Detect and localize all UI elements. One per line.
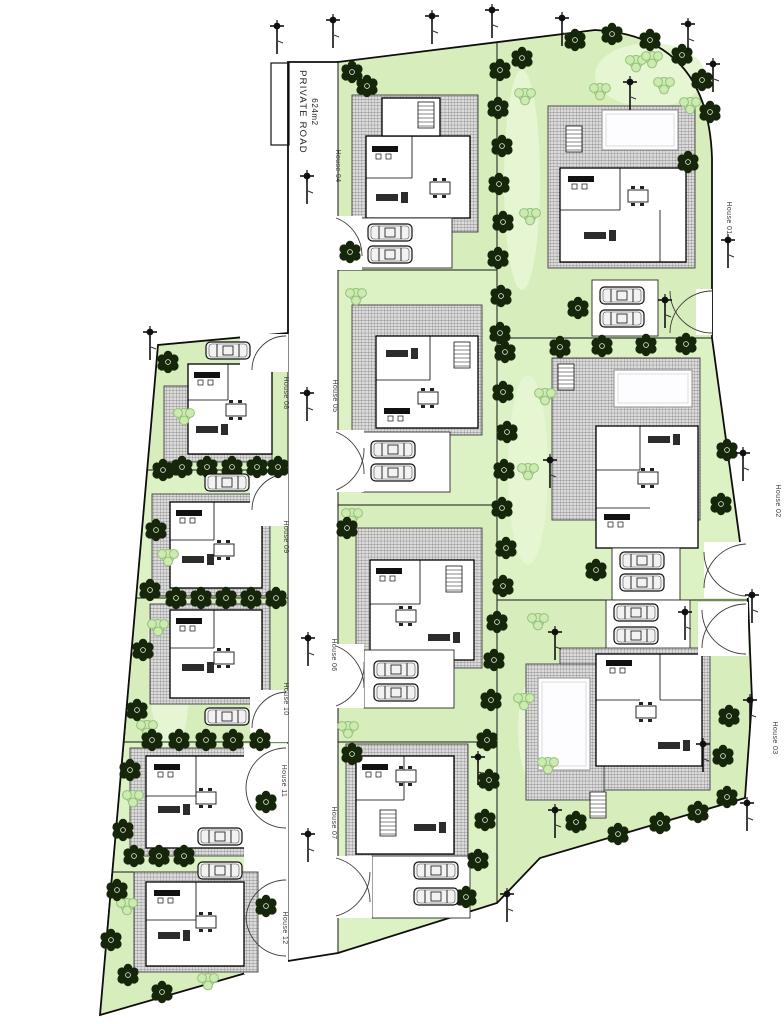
car-icon	[600, 310, 644, 327]
road-label: PRIVATE ROAD	[297, 70, 308, 154]
building	[560, 168, 686, 262]
shrub-icon	[198, 974, 219, 990]
site-plan-drawing: PRIVATE ROAD 624m2 House 01 House 02 Hou…	[0, 0, 784, 1024]
driveway	[696, 289, 712, 335]
tree-icon	[601, 23, 622, 45]
lamp-post-icon	[143, 326, 157, 360]
house-08-label: House 08	[282, 376, 289, 409]
pool	[538, 678, 590, 770]
site-plan-canvas: PRIVATE ROAD 624m2 House 01 House 02 Hou…	[0, 0, 784, 1024]
car-icon	[374, 684, 418, 701]
stairs-icon	[454, 342, 470, 368]
house-02-label: House 02	[774, 484, 781, 517]
car-icon	[205, 708, 249, 725]
house-10-label: House 10	[282, 682, 289, 715]
stairs-icon	[590, 792, 606, 818]
house-07-label: House 07	[330, 806, 337, 839]
lamp-post-icon	[740, 797, 754, 831]
stairs-icon	[418, 102, 434, 128]
lamp-post-icon	[721, 234, 735, 268]
road-entrance	[271, 63, 289, 145]
car-icon	[368, 224, 412, 241]
house-01-label: House 01	[725, 201, 732, 234]
house-12-label: House 12	[281, 911, 288, 944]
car-icon	[620, 552, 664, 569]
lamp-post-icon	[425, 10, 439, 44]
house-05-label: House 05	[331, 379, 338, 412]
building	[596, 426, 698, 548]
car-icon	[371, 464, 415, 481]
tree-icon	[639, 29, 660, 51]
lamp-post-icon	[326, 14, 340, 48]
stairs-icon	[566, 126, 582, 152]
car-icon	[368, 246, 412, 263]
pool	[602, 110, 678, 150]
road-area-label: 624m2	[310, 98, 319, 125]
lamp-post-icon	[736, 447, 750, 481]
stairs-icon	[380, 810, 396, 836]
lamp-post-icon	[270, 20, 284, 54]
house-04-label: House 04	[334, 149, 341, 182]
house-03-label: House 03	[771, 721, 778, 754]
car-icon	[620, 574, 664, 591]
car-icon	[600, 287, 644, 304]
car-icon	[374, 661, 418, 678]
stairs-icon	[446, 566, 462, 592]
car-icon	[614, 627, 658, 644]
stairs-icon	[558, 364, 574, 390]
car-icon	[205, 474, 249, 491]
car-icon	[198, 828, 242, 845]
house-11-label: House 11	[280, 765, 287, 798]
pool	[614, 370, 692, 407]
car-icon	[371, 441, 415, 458]
car-icon	[414, 888, 458, 905]
driveway	[704, 542, 748, 598]
house-09-label: House 09	[282, 520, 289, 553]
driveway	[334, 856, 372, 918]
car-icon	[614, 604, 658, 621]
house-06-label: House 06	[330, 638, 337, 671]
car-icon	[414, 862, 458, 879]
driveway	[250, 472, 288, 526]
lamp-post-icon	[485, 4, 499, 38]
car-icon	[198, 862, 242, 879]
car-icon	[206, 342, 250, 359]
